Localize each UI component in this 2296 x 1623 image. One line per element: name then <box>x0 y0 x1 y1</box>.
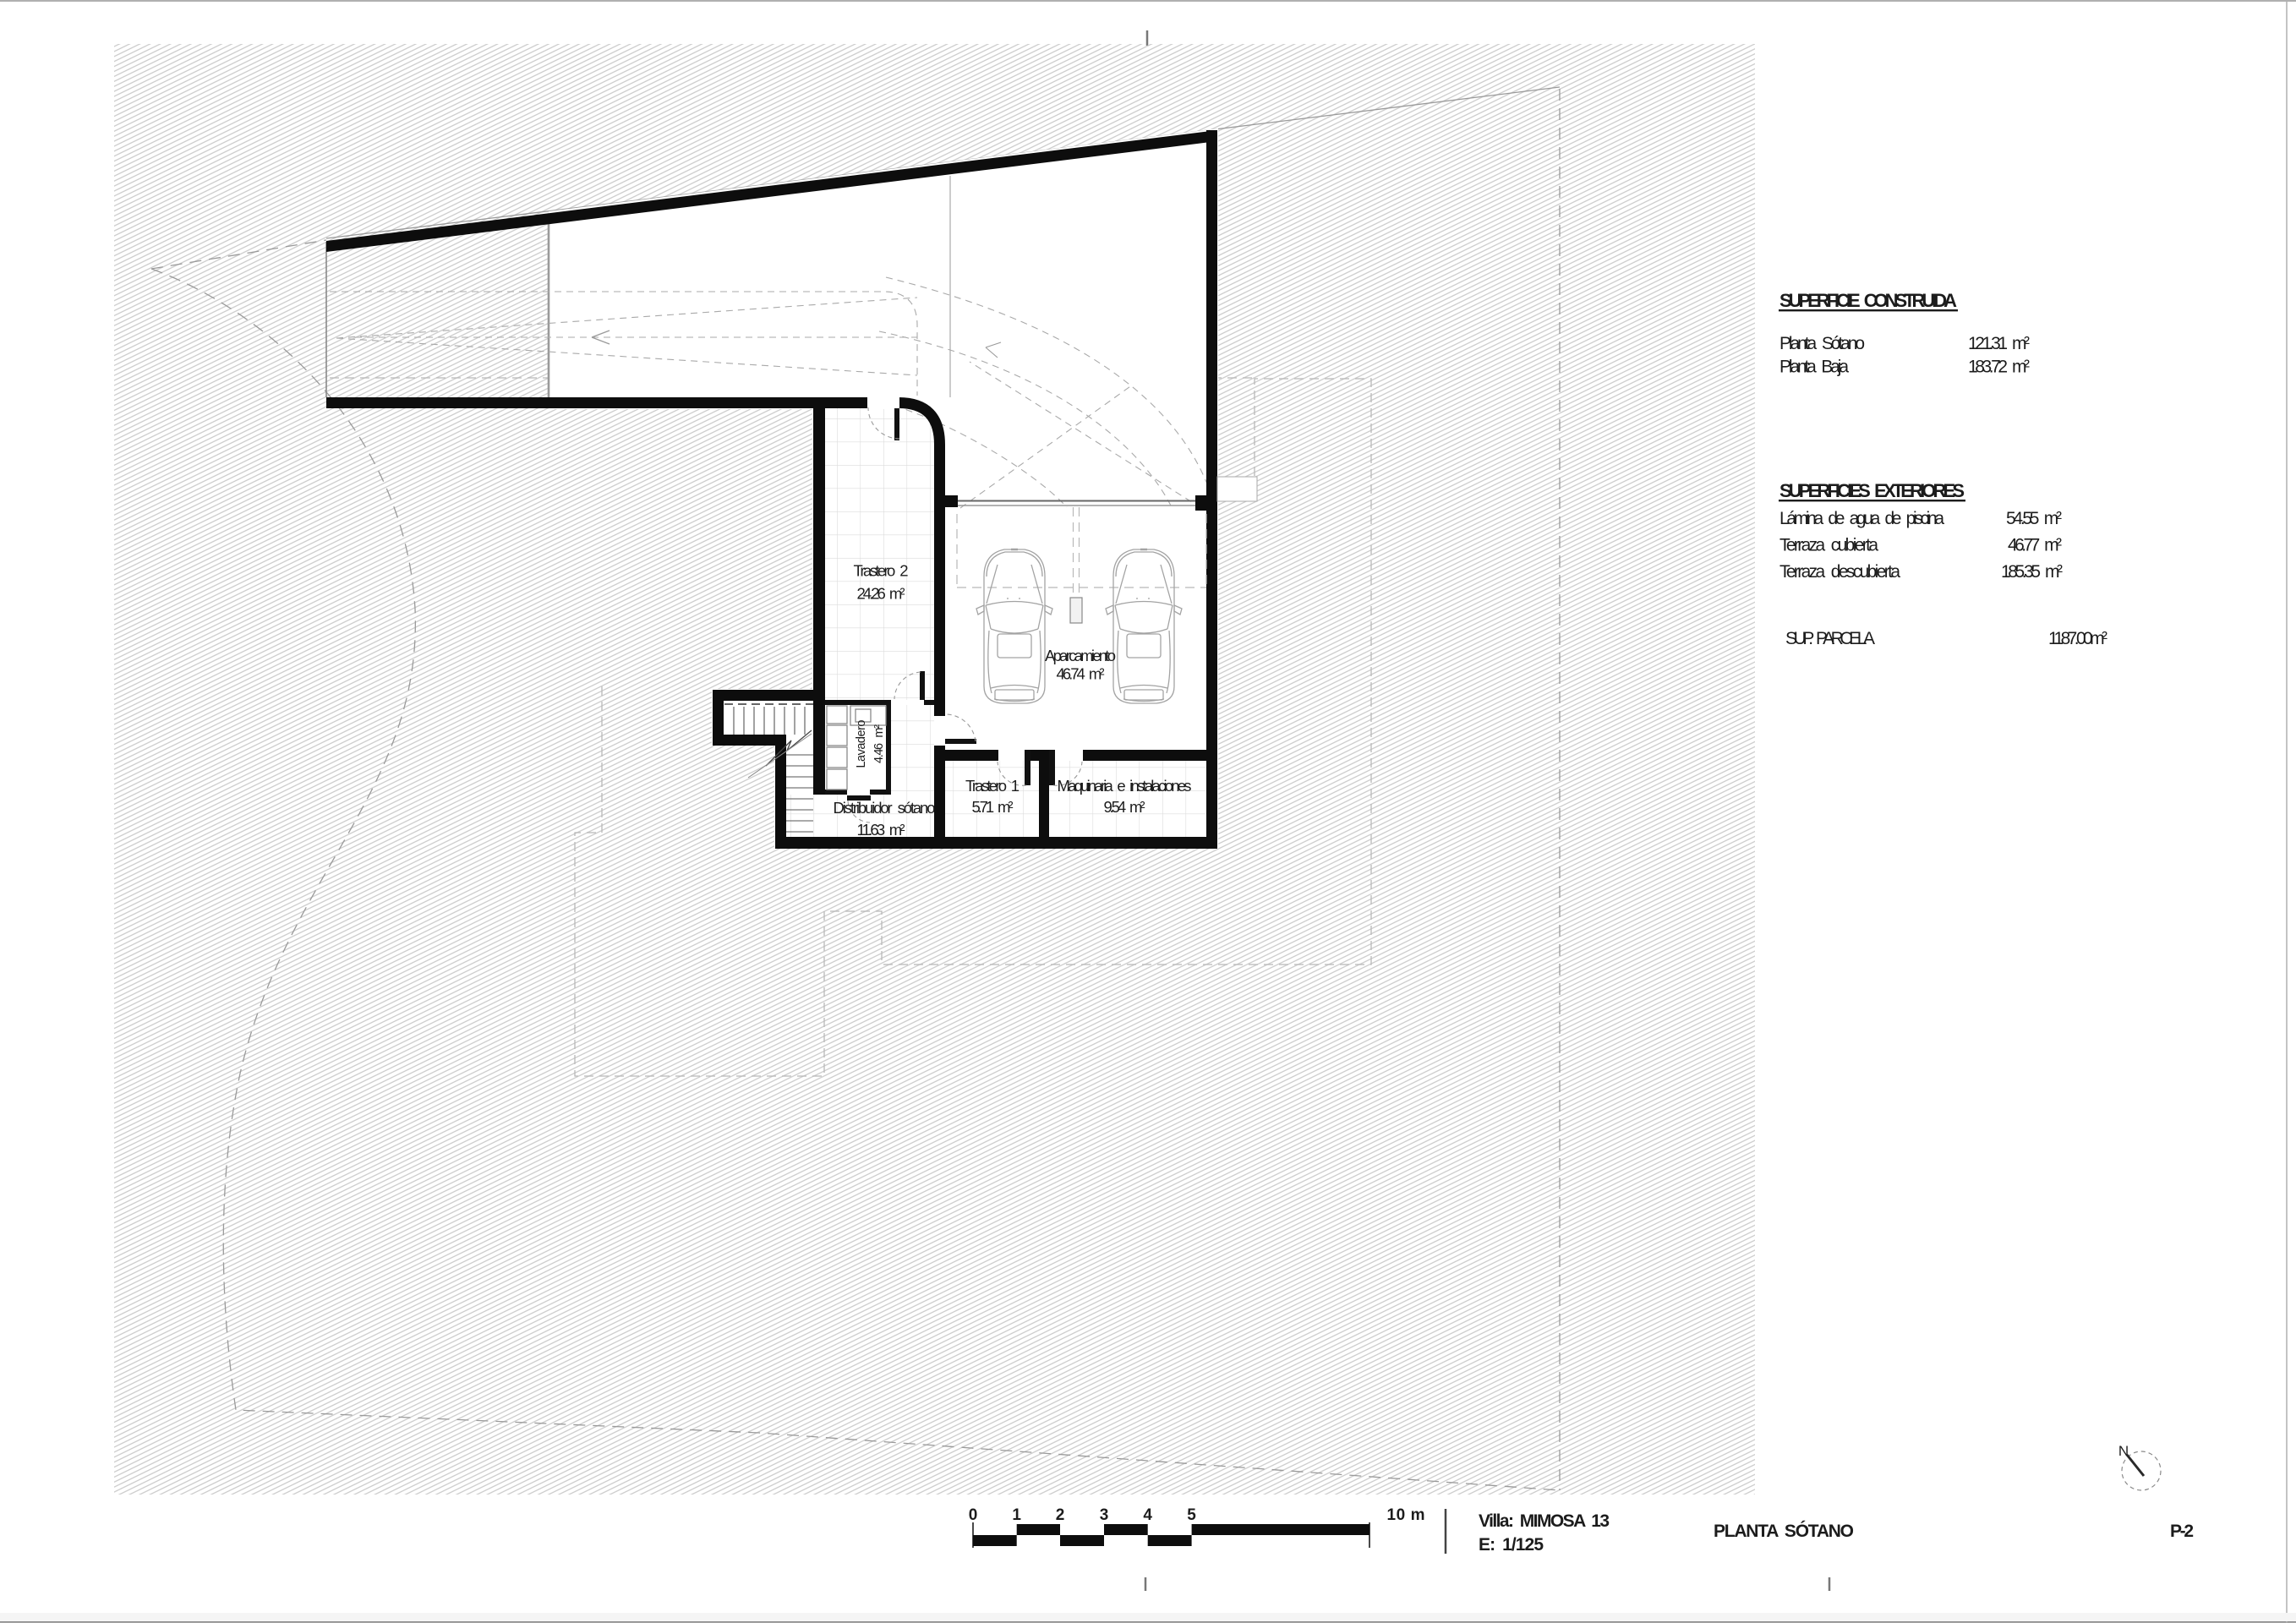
svg-text:185.35 m²: 185.35 m² <box>2001 562 2063 582</box>
svg-text:Lámina de agua de piscina: Lámina de agua de piscina <box>1779 509 1944 528</box>
svg-text:Trastero 1: Trastero 1 <box>965 777 1020 795</box>
svg-text:Planta Sótano: Planta Sótano <box>1779 334 1865 353</box>
svg-text:Villa: MIMOSA 13: Villa: MIMOSA 13 <box>1479 1511 1610 1531</box>
svg-text:Terraza cubierta: Terraza cubierta <box>1779 536 1878 555</box>
svg-text:54.55 m²: 54.55 m² <box>2006 509 2062 528</box>
svg-text:1187.00m²: 1187.00m² <box>2048 629 2107 648</box>
svg-text:24.26 m²: 24.26 m² <box>857 585 905 603</box>
svg-text:183.72 m²: 183.72 m² <box>1968 358 2030 377</box>
svg-text:10 m: 10 m <box>1387 1506 1425 1524</box>
svg-text:5.71 m²: 5.71 m² <box>972 798 1014 816</box>
svg-text:9.54 m²: 9.54 m² <box>1104 798 1145 816</box>
svg-text:SUPERFICIE CONSTRUIDA: SUPERFICIE CONSTRUIDA <box>1779 290 1957 311</box>
svg-text:46.77 m²: 46.77 m² <box>2008 536 2062 555</box>
svg-text:PLANTA SÓTANO: PLANTA SÓTANO <box>1714 1521 1854 1541</box>
svg-text:4: 4 <box>1143 1506 1152 1524</box>
svg-text:Terraza descubierta: Terraza descubierta <box>1779 562 1900 582</box>
svg-text:Planta Baja: Planta Baja <box>1779 358 1849 377</box>
svg-text:2: 2 <box>1056 1506 1065 1524</box>
svg-text:11.63 m²: 11.63 m² <box>857 821 905 839</box>
svg-text:P-2: P-2 <box>2170 1522 2194 1541</box>
svg-text:4.46 m²: 4.46 m² <box>872 724 886 763</box>
svg-text:3: 3 <box>1100 1506 1109 1524</box>
svg-text:Lavadero: Lavadero <box>855 720 868 768</box>
svg-text:121.31 m²: 121.31 m² <box>1968 334 2030 353</box>
svg-text:Aparcamiento: Aparcamiento <box>1045 647 1116 664</box>
svg-text:SUPERFICIES EXTERIORES: SUPERFICIES EXTERIORES <box>1779 480 1965 501</box>
svg-text:Distribuidor sótano: Distribuidor sótano <box>834 799 936 817</box>
svg-text:0: 0 <box>969 1506 978 1524</box>
svg-text:46.74 m²: 46.74 m² <box>1057 665 1105 683</box>
svg-text:N: N <box>2118 1443 2129 1459</box>
svg-text:5: 5 <box>1187 1506 1196 1524</box>
svg-text:E: 1/125: E: 1/125 <box>1479 1535 1544 1555</box>
svg-text:1: 1 <box>1012 1506 1021 1524</box>
svg-text:Trastero 2: Trastero 2 <box>854 562 909 580</box>
svg-text:Maquinaria e instalaciones: Maquinaria e instalaciones <box>1058 777 1192 795</box>
svg-text:SUP. PARCELA: SUP. PARCELA <box>1785 629 1875 648</box>
